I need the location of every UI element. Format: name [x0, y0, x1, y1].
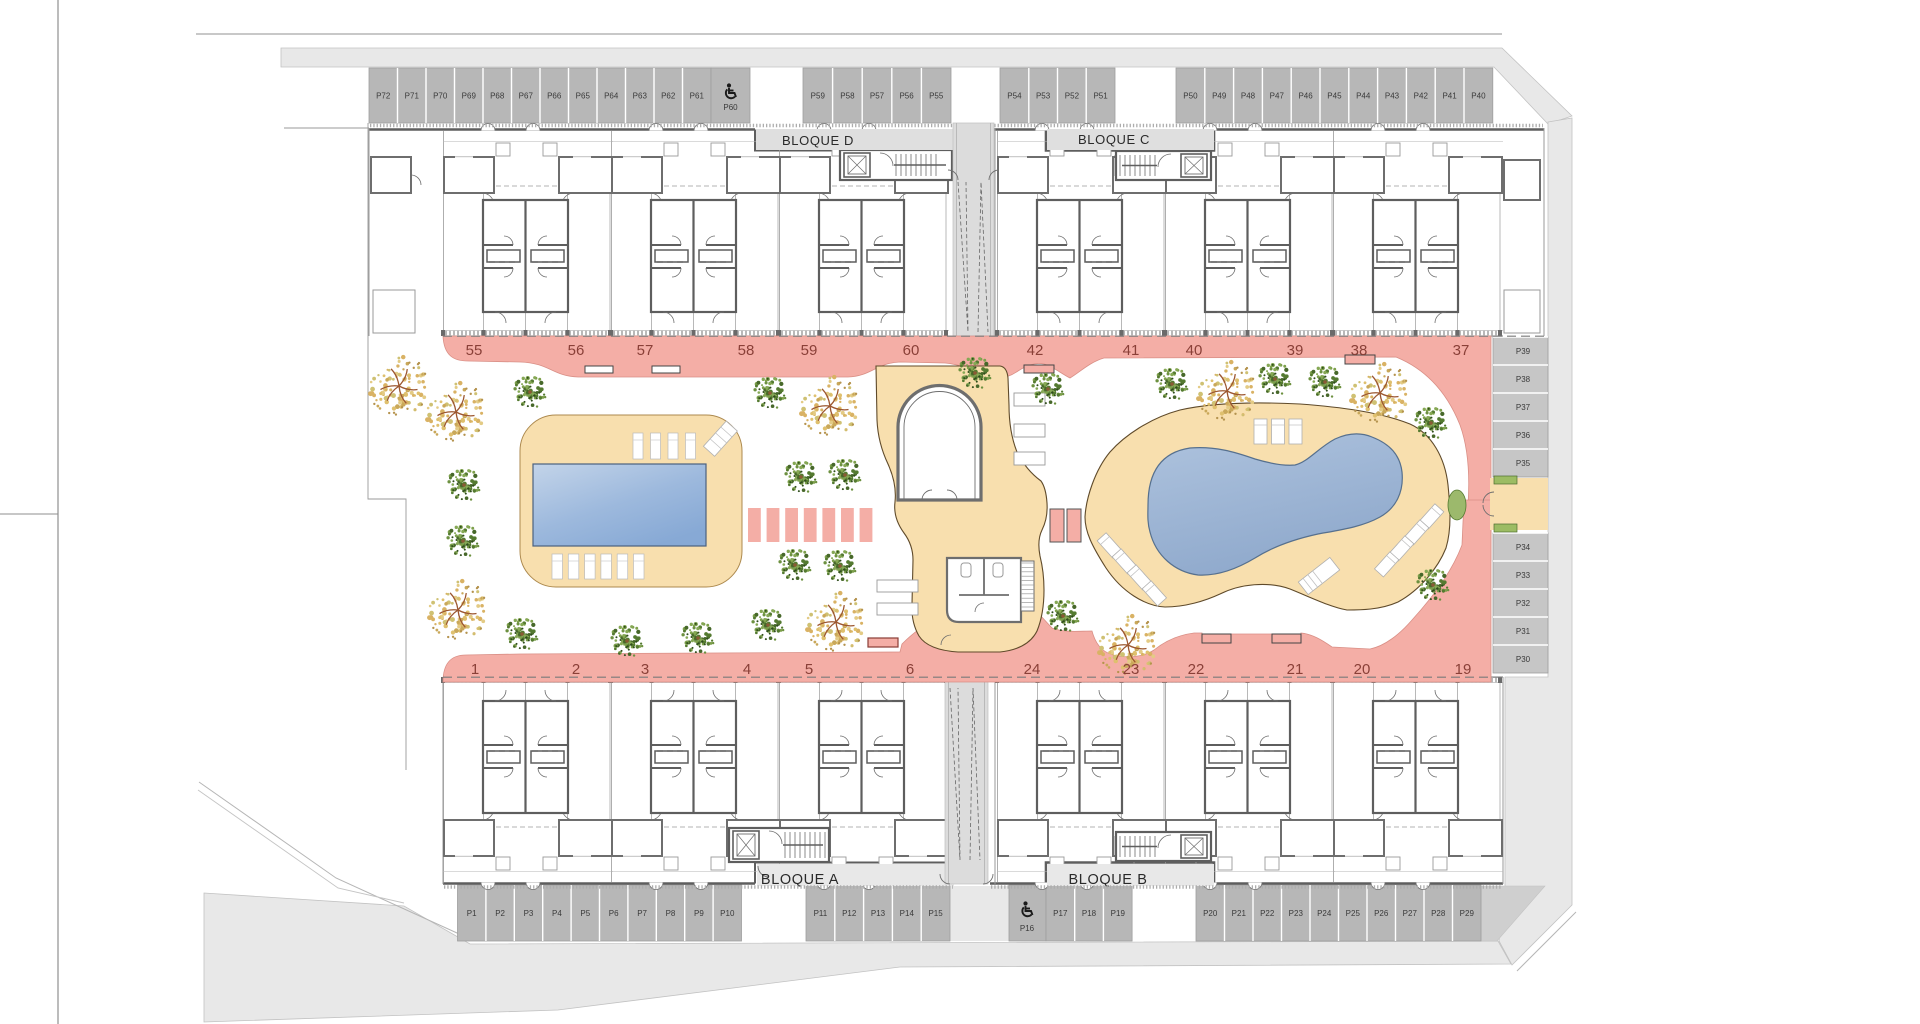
svg-text:59: 59 [801, 342, 818, 359]
svg-text:P14: P14 [900, 909, 915, 918]
svg-text:P31: P31 [1516, 627, 1531, 636]
svg-text:3: 3 [641, 661, 649, 678]
svg-text:P34: P34 [1516, 543, 1531, 552]
svg-text:P23: P23 [1289, 909, 1304, 918]
svg-text:P63: P63 [633, 92, 648, 101]
svg-text:58: 58 [738, 342, 755, 359]
svg-text:P28: P28 [1431, 909, 1446, 918]
svg-text:56: 56 [568, 342, 585, 359]
svg-text:P59: P59 [811, 92, 826, 101]
svg-text:P61: P61 [690, 92, 705, 101]
svg-text:P60: P60 [723, 103, 738, 112]
svg-text:37: 37 [1453, 342, 1470, 359]
svg-text:P40: P40 [1471, 92, 1486, 101]
svg-text:P2: P2 [495, 909, 505, 918]
svg-text:P58: P58 [840, 92, 855, 101]
svg-text:P54: P54 [1007, 92, 1022, 101]
svg-text:P32: P32 [1516, 599, 1531, 608]
svg-text:19: 19 [1455, 661, 1472, 678]
svg-text:P27: P27 [1403, 909, 1418, 918]
svg-text:P30: P30 [1516, 655, 1531, 664]
svg-text:P26: P26 [1374, 909, 1389, 918]
svg-text:P15: P15 [928, 909, 943, 918]
svg-text:P68: P68 [490, 92, 505, 101]
svg-text:2: 2 [572, 661, 580, 678]
svg-text:P20: P20 [1203, 909, 1218, 918]
svg-text:P9: P9 [694, 909, 704, 918]
svg-text:P17: P17 [1053, 909, 1068, 918]
svg-text:1: 1 [471, 661, 479, 678]
svg-text:P49: P49 [1212, 92, 1227, 101]
svg-text:P11: P11 [814, 909, 828, 918]
svg-text:P25: P25 [1346, 909, 1361, 918]
svg-text:P8: P8 [666, 909, 676, 918]
svg-text:P42: P42 [1414, 92, 1429, 101]
svg-text:P36: P36 [1516, 431, 1531, 440]
svg-text:22: 22 [1188, 661, 1205, 678]
svg-text:P69: P69 [462, 92, 477, 101]
svg-text:P46: P46 [1298, 92, 1313, 101]
svg-text:P50: P50 [1183, 92, 1198, 101]
svg-text:21: 21 [1287, 661, 1304, 678]
svg-text:39: 39 [1287, 342, 1304, 359]
svg-text:P7: P7 [637, 909, 647, 918]
svg-text:60: 60 [903, 342, 920, 359]
svg-text:P43: P43 [1385, 92, 1400, 101]
svg-text:P39: P39 [1516, 347, 1531, 356]
svg-text:P12: P12 [842, 909, 857, 918]
svg-text:38: 38 [1351, 342, 1368, 359]
svg-text:P52: P52 [1065, 92, 1080, 101]
svg-text:P51: P51 [1093, 92, 1108, 101]
svg-text:P19: P19 [1111, 909, 1126, 918]
svg-text:P18: P18 [1082, 909, 1097, 918]
svg-text:P1: P1 [467, 909, 477, 918]
svg-text:P38: P38 [1516, 375, 1531, 384]
svg-text:P70: P70 [433, 92, 448, 101]
svg-text:P57: P57 [870, 92, 885, 101]
svg-text:BLOQUE C: BLOQUE C [1078, 132, 1150, 147]
svg-text:P65: P65 [576, 92, 591, 101]
svg-text:4: 4 [743, 661, 751, 678]
svg-text:P67: P67 [519, 92, 534, 101]
svg-text:20: 20 [1354, 661, 1371, 678]
svg-text:P4: P4 [552, 909, 562, 918]
svg-text:P72: P72 [376, 92, 391, 101]
svg-text:P13: P13 [871, 909, 886, 918]
svg-text:P21: P21 [1232, 909, 1247, 918]
svg-text:P53: P53 [1036, 92, 1051, 101]
svg-text:P66: P66 [547, 92, 562, 101]
svg-text:P37: P37 [1516, 403, 1531, 412]
svg-text:P48: P48 [1241, 92, 1256, 101]
svg-text:P6: P6 [609, 909, 619, 918]
svg-text:P44: P44 [1356, 92, 1371, 101]
svg-text:40: 40 [1186, 342, 1203, 359]
svg-text:P24: P24 [1317, 909, 1332, 918]
svg-text:P35: P35 [1516, 459, 1531, 468]
svg-text:P41: P41 [1442, 92, 1457, 101]
svg-text:57: 57 [637, 342, 654, 359]
svg-text:55: 55 [466, 342, 483, 359]
svg-text:P10: P10 [720, 909, 735, 918]
svg-text:P62: P62 [661, 92, 676, 101]
svg-text:23: 23 [1123, 661, 1140, 678]
svg-text:6: 6 [906, 661, 914, 678]
svg-text:P3: P3 [524, 909, 534, 918]
svg-text:P45: P45 [1327, 92, 1342, 101]
svg-text:P56: P56 [899, 92, 914, 101]
svg-text:41: 41 [1123, 342, 1140, 359]
svg-text:P64: P64 [604, 92, 619, 101]
svg-text:P71: P71 [405, 92, 420, 101]
svg-text:P22: P22 [1260, 909, 1275, 918]
svg-text:24: 24 [1024, 661, 1041, 678]
svg-text:P29: P29 [1460, 909, 1475, 918]
svg-text:5: 5 [805, 661, 813, 678]
svg-text:P55: P55 [929, 92, 944, 101]
svg-text:P5: P5 [580, 909, 590, 918]
svg-text:42: 42 [1027, 342, 1044, 359]
svg-text:BLOQUE D: BLOQUE D [782, 133, 854, 148]
svg-text:P33: P33 [1516, 571, 1531, 580]
svg-text:P16: P16 [1020, 924, 1035, 933]
svg-text:P47: P47 [1270, 92, 1285, 101]
